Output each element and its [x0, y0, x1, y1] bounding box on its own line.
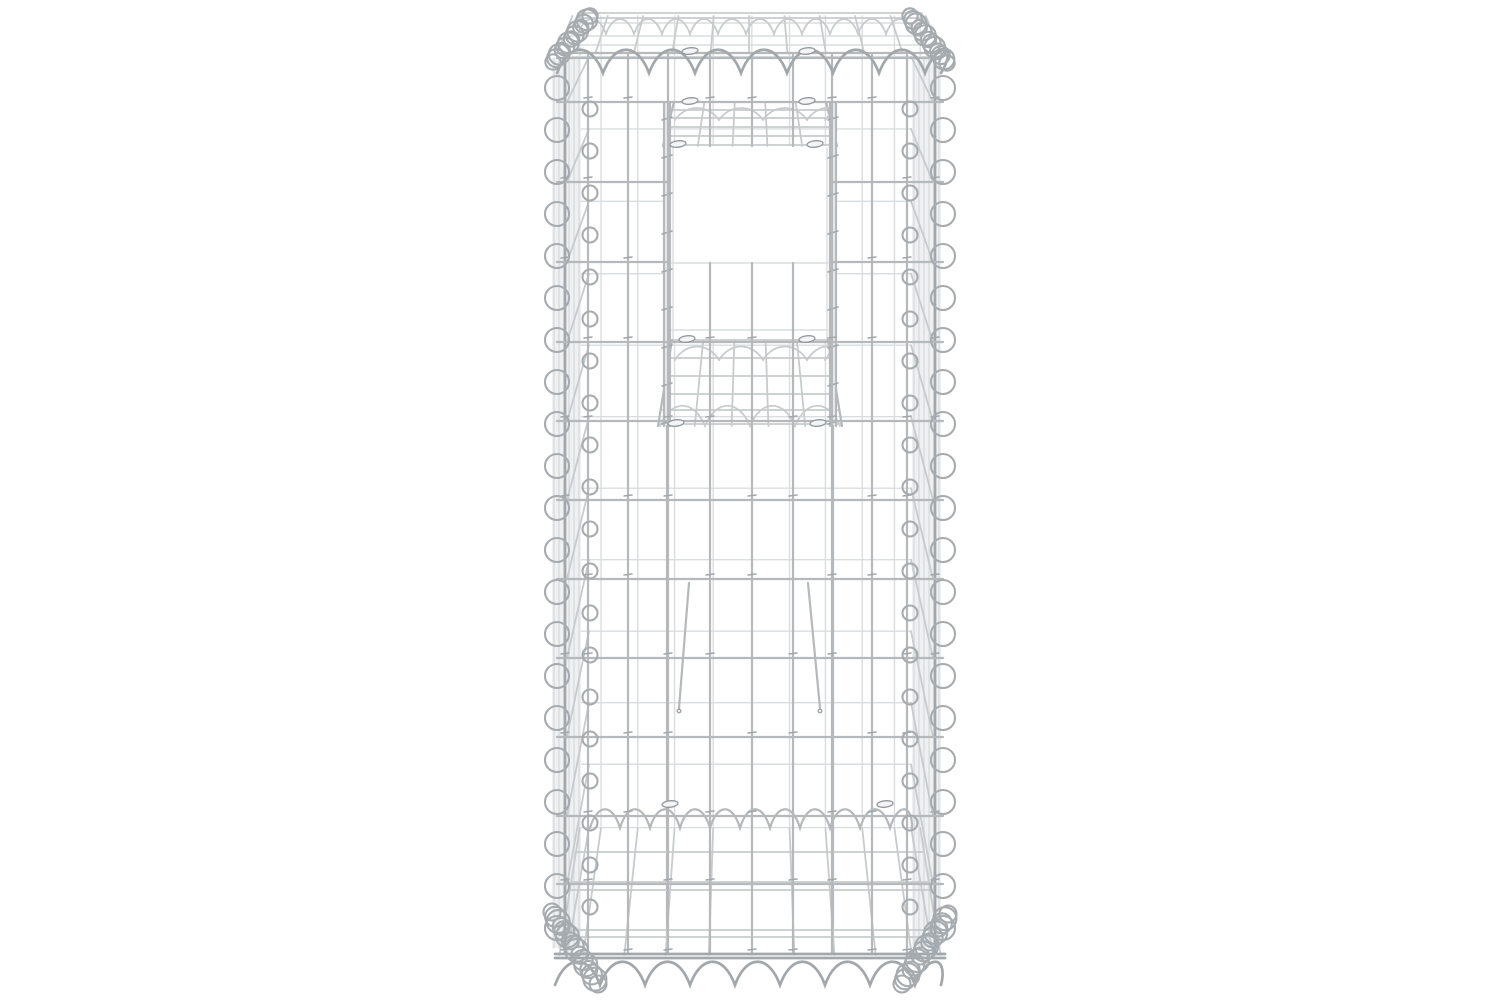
product-photo-stage — [0, 0, 1500, 1000]
gabion-post-illustration — [0, 0, 1500, 1000]
hook-wires — [677, 583, 822, 713]
tunnel-window — [669, 146, 831, 341]
bottom-basket — [559, 828, 940, 955]
